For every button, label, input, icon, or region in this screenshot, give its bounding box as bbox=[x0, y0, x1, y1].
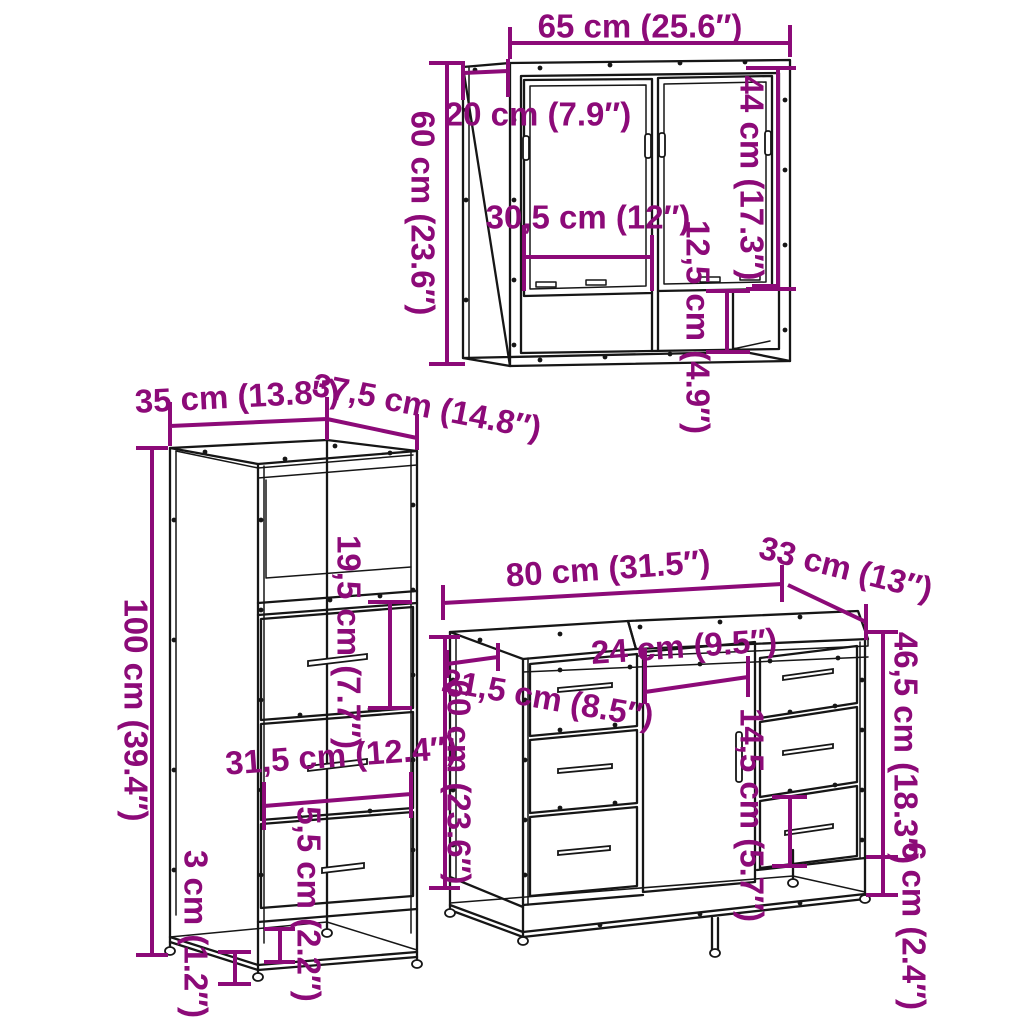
dim-mirror-door-height-label: 44 cm (17.3″) bbox=[733, 76, 770, 281]
dim-tall-height-label: 100 cm (39.4″) bbox=[117, 598, 154, 821]
product-dimension-diagram: 65 cm (25.6″) 20 cm (7.9″) 60 cm (23.6″)… bbox=[0, 0, 1024, 1024]
dim-vanity-height-label: 60 cm (23.6″) bbox=[440, 680, 477, 885]
dim-mirror-depth-label: 20 cm (7.9″) bbox=[445, 96, 631, 133]
dim-vanity-base-clearance-label: 6 cm (2.4″) bbox=[895, 842, 932, 1010]
dim-mirror-door-width-label: 30,5 cm (12″) bbox=[486, 199, 691, 236]
dim-mirror-shelf-height-label: 12,5 cm (4.9″) bbox=[679, 220, 716, 434]
dim-mirror-width-label: 65 cm (25.6″) bbox=[538, 8, 743, 45]
dim-vanity-column-height-label: 46,5 cm (18.3″) bbox=[887, 632, 924, 864]
dim-mirror-height-label: 60 cm (23.6″) bbox=[404, 111, 441, 316]
dim-tall-bottom-gap-label: 5,5 cm (2.2″) bbox=[290, 806, 327, 1002]
dim-tall-compartment-label: 19,5 cm (7.7″) bbox=[330, 535, 367, 749]
dim-vanity-drawer-height-label: 14,5 cm (5.7″) bbox=[733, 708, 770, 922]
dim-tall-base-rail-label: 3 cm (1.2″) bbox=[177, 850, 214, 1018]
diagram-canvas: 65 cm (25.6″) 20 cm (7.9″) 60 cm (23.6″)… bbox=[0, 0, 1024, 1024]
